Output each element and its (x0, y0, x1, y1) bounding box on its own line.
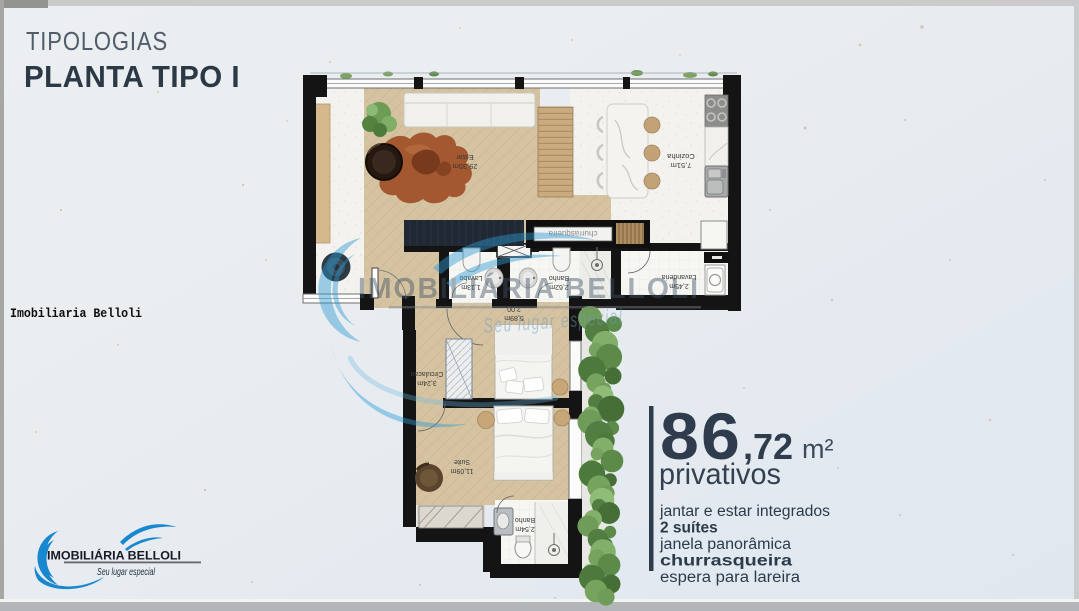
svg-text:Seu lugar especial: Seu lugar especial (97, 567, 156, 578)
svg-text:2,54m: 2,54m (515, 525, 535, 532)
svg-text:privativos: privativos (659, 458, 781, 491)
svg-text:3,24m: 3,24m (417, 379, 437, 386)
svg-text:2 suítes: 2 suítes (660, 520, 718, 537)
svg-text:Estar: Estar (456, 153, 474, 162)
svg-text:PLANTA TIPO I: PLANTA TIPO I (24, 59, 240, 94)
svg-text:29,35m: 29,35m (452, 162, 477, 171)
svg-text:11,09m: 11,09m (450, 467, 473, 474)
svg-text:Suite: Suite (454, 458, 470, 465)
svg-text:m²: m² (802, 434, 833, 464)
svg-text:IMOBILIÁRIA BELLOLI: IMOBILIÁRIA BELLOLI (358, 271, 700, 305)
svg-text:Circulacao: Circulacao (410, 370, 443, 377)
svg-text:espera para lareira: espera para lareira (660, 569, 800, 586)
svg-text:IMOBILIÁRIA BELLOLI: IMOBILIÁRIA BELLOLI (47, 550, 181, 563)
svg-text:TIPOLOGIAS: TIPOLOGIAS (26, 26, 168, 56)
svg-text:Imobiliaria Belloli: Imobiliaria Belloli (10, 306, 142, 321)
svg-text:Cozinha: Cozinha (666, 152, 694, 161)
svg-text:churrasqueira: churrasqueira (660, 553, 792, 570)
svg-text:7,51m: 7,51m (671, 161, 692, 170)
svg-text:Banho: Banho (515, 516, 535, 523)
svg-text:jantar e estar integrados: jantar e estar integrados (659, 503, 830, 520)
svg-text:janela panorâmica: janela panorâmica (659, 536, 791, 553)
